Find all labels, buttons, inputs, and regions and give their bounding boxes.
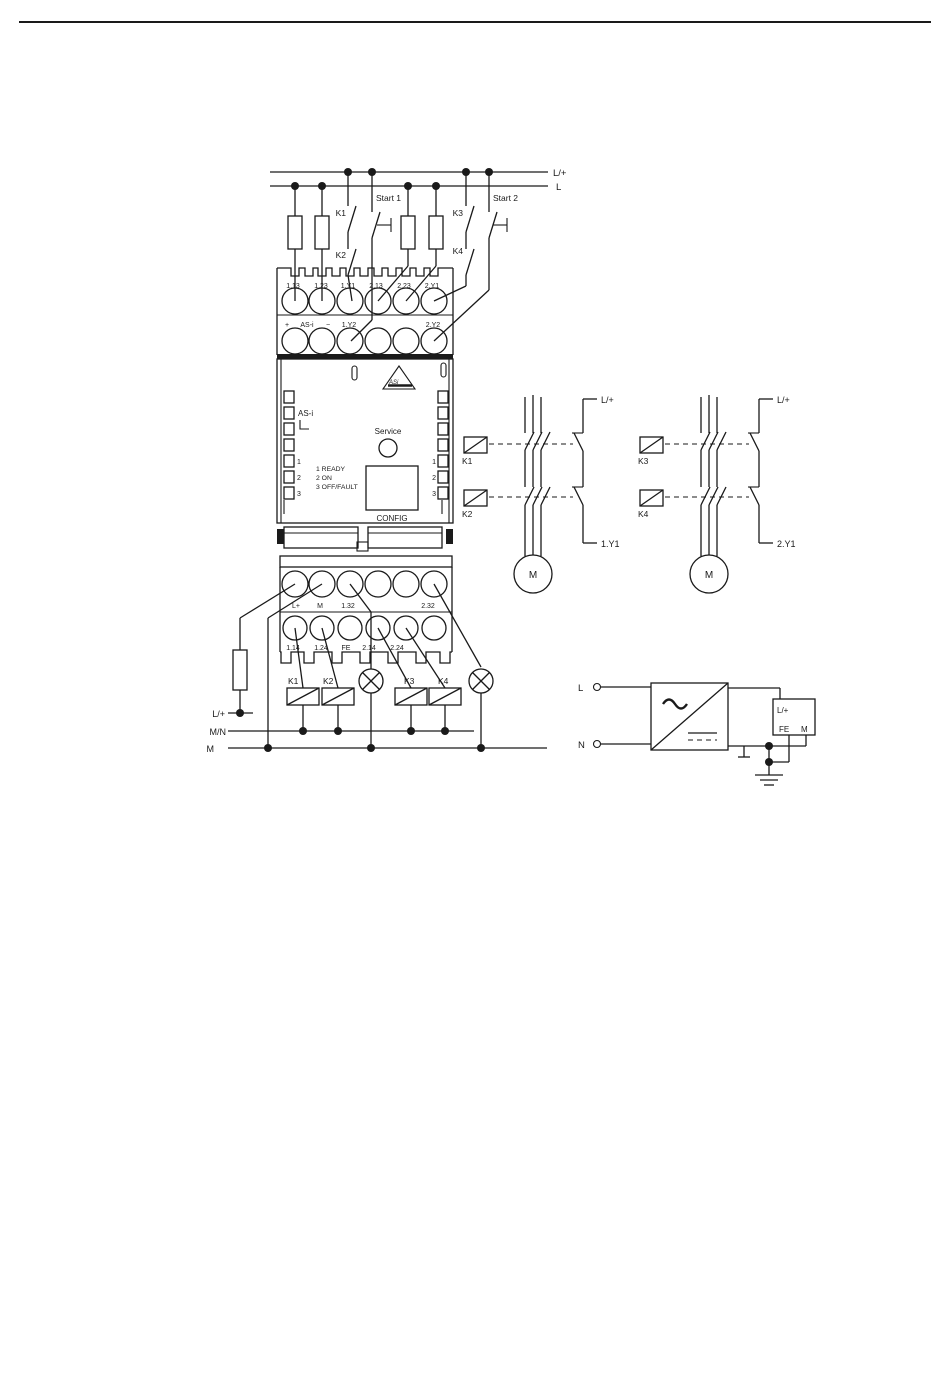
box-m-label: M [801,725,808,734]
wiring-diagram: L/+ L K1 K2 [0,0,950,1398]
fuse [315,216,329,249]
asi-bus-label: AS-i [300,322,314,329]
config-label: CONFIG [376,514,407,523]
motor-circuit-1: K1 K2 L/+ 1.Y1 M [462,395,620,593]
coil-k2-label: K2 [323,676,334,686]
terminal-spare-2 [393,328,419,354]
coil-k3-label: K3 [404,676,415,686]
bottom-terminal-block: L+ M 1.32 2.32 1.14 1.24 FE 2.14 2.24 [280,556,452,663]
asi-minus-label: − [326,322,330,329]
start1-label: Start 1 [376,193,401,203]
config-button [366,466,418,510]
cover-clip-left [277,529,284,544]
fuse [429,216,443,249]
legend-on: 2 ON [316,475,332,482]
led-column-right [438,391,448,514]
asi-plus-label: + [285,322,289,329]
asi-led-bracket [300,420,309,429]
terminal-label-fe: FE [342,645,351,652]
k2-no-contact [348,249,356,275]
asi-logo: ASi [383,366,415,389]
start1-branch: Start 1 [351,172,401,341]
motor2-coil-top-label: K3 [638,456,649,466]
service-button [379,439,397,457]
terminal-label-m: M [317,603,323,610]
output-wiring: L/+ [207,584,548,754]
motor-1-label: M [529,570,537,581]
box-lplus-label: L/+ [777,706,789,715]
contact-branch-k3-k4: K3 K4 [434,172,474,301]
terminal-cover-left [284,527,358,548]
terminal-spare-5 [422,616,446,640]
k2-contact-label: K2 [336,250,347,260]
terminal-spare-4 [393,571,419,597]
k4-contact-label: K4 [453,246,464,256]
terminal-label-2-32: 2.32 [421,603,435,610]
led-num-right-2: 2 [432,475,436,482]
earth-ground-symbol [755,762,783,785]
mounting-slot [441,363,446,377]
terminal-spare-1 [365,328,391,354]
motor2-control-label: 2.Y1 [777,539,796,549]
motor1-supply-label: L/+ [601,395,614,405]
k3-no-contact [466,206,474,232]
start2-branch: Start 2 [434,172,518,341]
k4-no-contact [466,249,474,275]
motor2-supply-label: L/+ [777,395,790,405]
start2-label: Start 2 [493,193,518,203]
mn-rail-label: M/N [210,727,227,737]
led-column-left [284,391,294,514]
fuse [401,216,415,249]
rail-lplus-label: L/+ [553,168,567,179]
motor1-coil-bottom-label: K2 [462,509,473,519]
led-num-right-3: 3 [432,491,436,498]
terminal-label-1-32: 1.32 [341,603,355,610]
legend-off-fault: 3 OFF/FAULT [316,484,358,491]
module-asi-label: AS-i [298,409,313,418]
contact-branch-k1-k2: K1 K2 [336,172,356,301]
terminal-1-y2 [337,328,363,354]
terminal-fe [338,616,362,640]
psu-n-label: N [578,740,585,751]
led-num-left-2: 2 [297,475,301,482]
phase-lines [701,395,726,556]
top-rails: L/+ L [270,168,567,193]
terminal-label-2-14: 2.14 [362,645,376,652]
coil-k1-label: K1 [288,676,299,686]
terminal-label-lplus: L+ [292,603,300,610]
psu-l-terminal [594,684,601,691]
motor1-coil-top-label: K1 [462,456,473,466]
fuse [288,216,302,249]
top-terminal-block: 1.13 1.23 1.Y1 2.13 2.23 2.Y1 + AS-i − 1… [277,268,453,359]
svg-text:ASi: ASi [388,380,399,386]
psu-l-label: L [578,683,583,694]
box-fe-label: FE [779,725,789,734]
cover-clip-right [446,529,453,544]
k1-contact-label: K1 [336,208,347,218]
lplus-rail-label: L/+ [212,709,225,719]
asi-module-body: ASi AS-i 1 2 3 [277,359,453,551]
mounting-slot [352,366,357,380]
motor-2-label: M [705,570,713,581]
coil-k4-label: K4 [438,676,449,686]
terminal-spare-3 [365,571,391,597]
terminal-asi-minus [309,328,335,354]
ac-symbol [663,700,687,709]
chassis-earth-symbol [738,746,750,757]
led-num-left-3: 3 [297,491,301,498]
service-label: Service [375,427,402,436]
phase-lines [525,395,550,556]
led-num-left-1: 1 [297,459,301,466]
k1-no-contact [348,206,356,232]
terminal-cover-right [368,527,442,548]
motor1-control-label: 1.Y1 [601,539,620,549]
terminal-label-2-24: 2.24 [390,645,404,652]
psu-n-terminal [594,741,601,748]
indicator-lamp-2 [469,669,493,693]
legend-ready: 1 READY [316,466,346,473]
indicator-lamp-1 [359,669,383,693]
terminal-asi-plus [282,328,308,354]
motor2-coil-bottom-label: K4 [638,509,649,519]
rail-l-label: L [556,182,561,193]
power-supply-unit: L N L/+ FE M [578,683,815,785]
block-bottom-bar [277,354,453,359]
manual-page: L/+ L K1 K2 [0,0,950,1398]
k3-contact-label: K3 [453,208,464,218]
fuse [233,650,247,690]
motor-circuit-2: K3 K4 L/+ 2.Y1 M [638,395,796,593]
led-num-right-1: 1 [432,459,436,466]
m-rail-label: M [207,744,215,754]
terminal-label-1-24: 1.24 [314,645,328,652]
